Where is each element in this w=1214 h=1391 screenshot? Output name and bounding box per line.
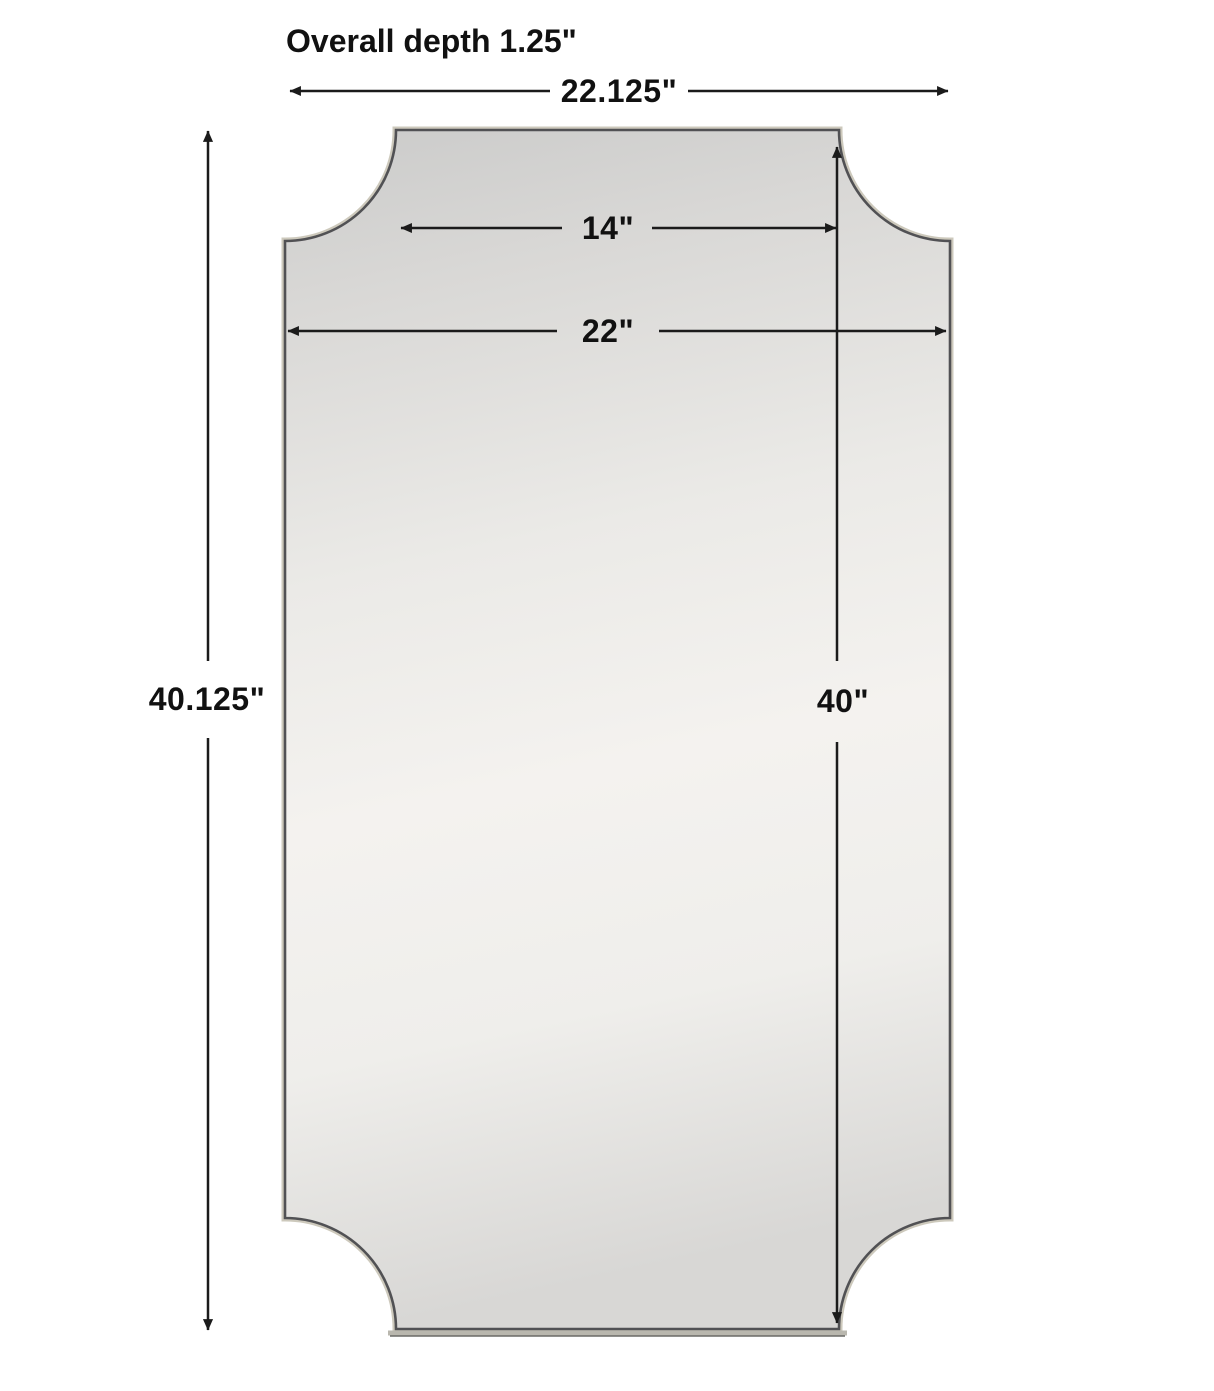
dim-body-width-label: 22": [582, 315, 634, 347]
mirror-frame: [285, 130, 950, 1329]
dim-overall-width-label: 22.125": [561, 75, 678, 107]
dim-top-edge-width-label: 14": [582, 212, 634, 244]
depth-note: Overall depth 1.25": [286, 25, 577, 57]
dim-body-height-label: 40": [817, 685, 869, 717]
mirror-shape: [285, 130, 950, 1336]
mirror-dimension-diagram: Overall depth 1.25" 22.125" 14" 22" 40.1…: [0, 0, 1214, 1391]
dim-overall-height-label: 40.125": [149, 683, 266, 715]
